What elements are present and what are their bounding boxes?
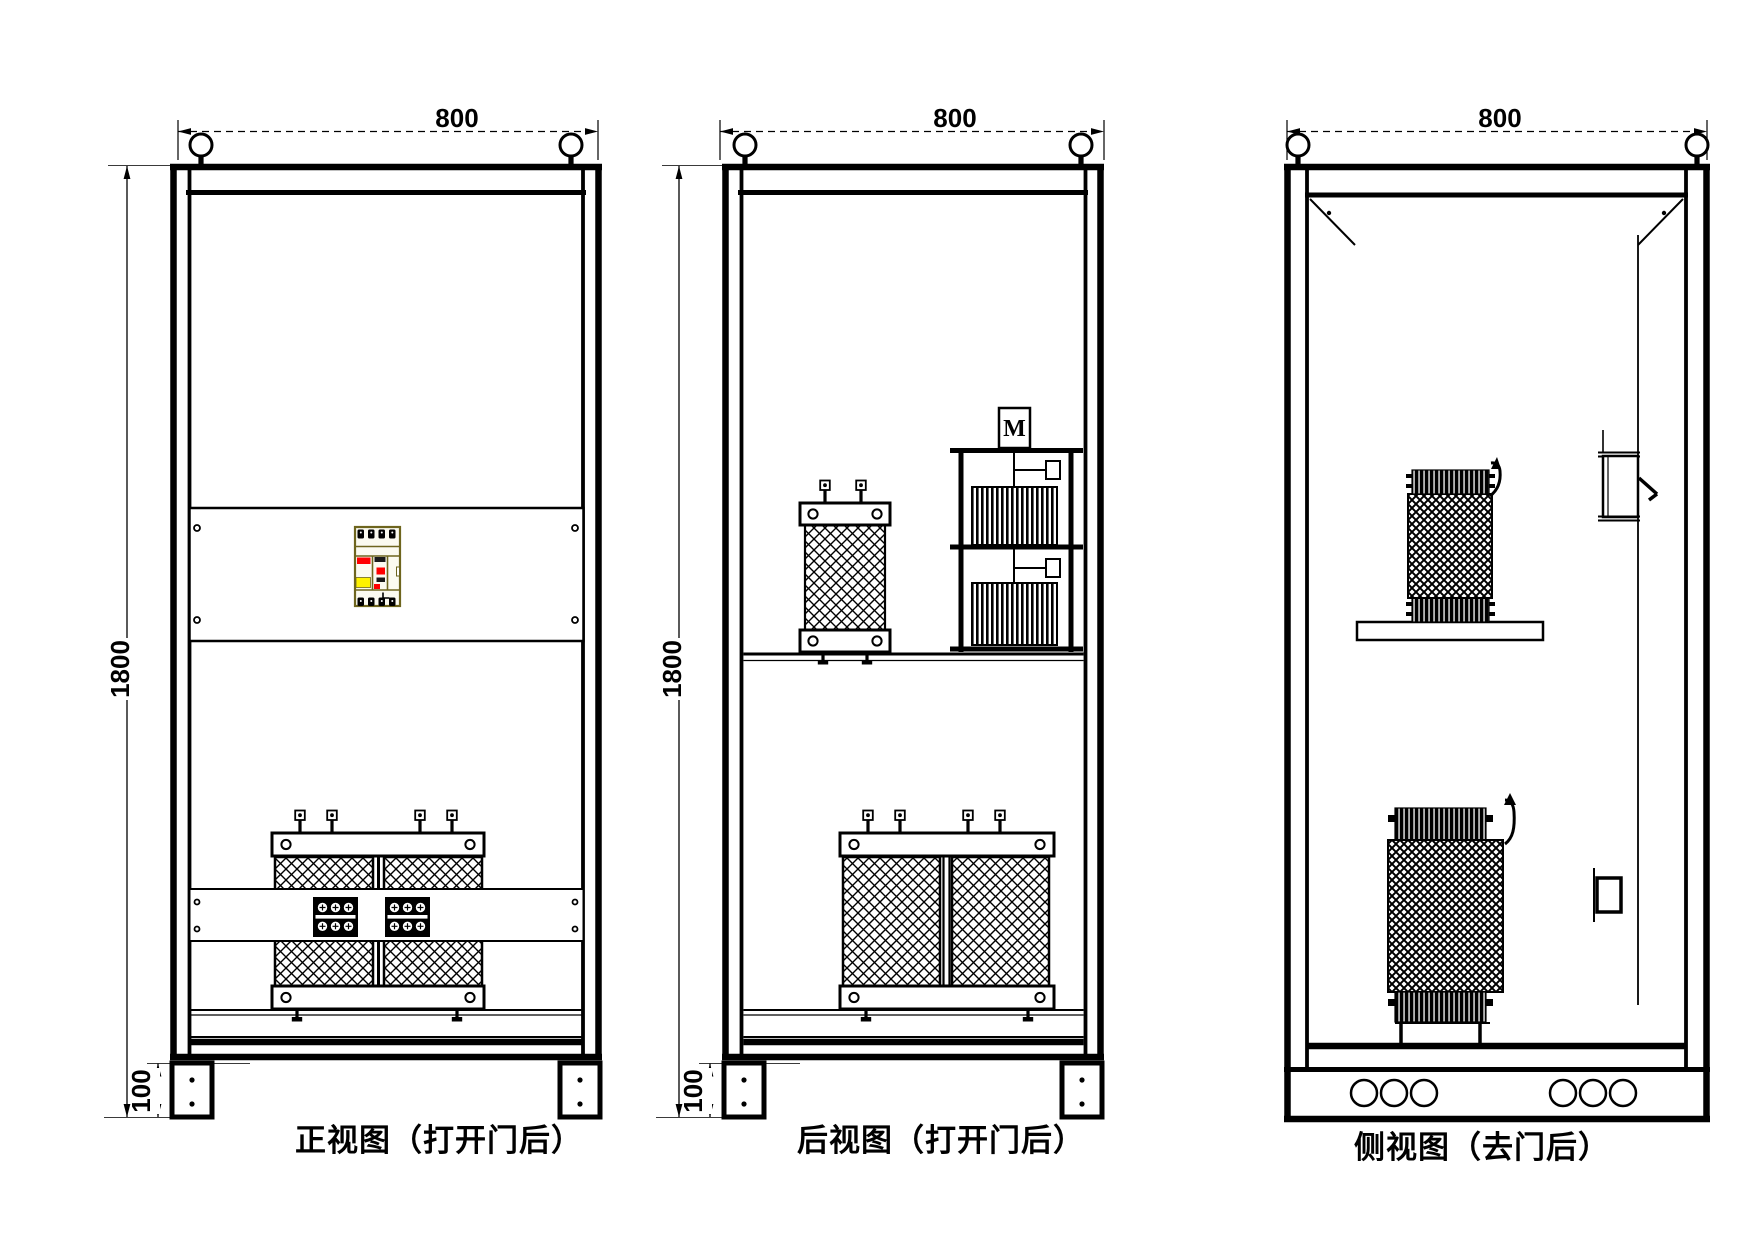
lifting-eye [1287,134,1309,166]
wall-bracket [1594,868,1621,922]
front-view: 800 1800 100 [104,103,602,1158]
rear-foot-right [1062,1063,1102,1117]
rear-base-label: 100 [678,1069,708,1112]
rear-view-caption: 后视图（打开门后） [797,1123,1085,1158]
front-base-label: 100 [126,1069,156,1112]
cable-entry-hole [1550,1080,1576,1106]
terminal-stud [327,811,337,834]
side-base [1284,1070,1710,1120]
terminal-block [314,898,357,936]
terminal-stud [295,811,305,834]
side-view: 800 [1284,103,1710,1165]
rear-small-transformer [800,481,890,665]
breaker-red-flag [357,558,371,565]
transformer-lead-wire [1504,793,1516,844]
motor-label: M [1003,416,1026,442]
door-handle [1639,478,1657,500]
rear-height-label: 1800 [657,640,687,698]
front-transformer [190,811,584,1022]
terminal-stud [856,481,866,504]
front-width-label: 800 [435,103,478,133]
corner-gusset [1638,199,1683,245]
reactor-fin-block [972,583,1057,645]
terminal-block [386,898,429,936]
side-upper-reactor [1357,457,1543,640]
rear-reactor-rack: M [950,408,1083,652]
side-main-transformer [1388,793,1621,1046]
side-width-label: 800 [1478,103,1521,133]
lifting-eye [1070,134,1092,166]
lifting-eye [560,134,582,166]
front-foot-right [560,1063,600,1117]
terminal-stud [415,811,425,834]
door-mounted-box [1598,430,1657,521]
front-dimension-width: 800 [178,103,598,160]
lifting-eye [734,134,756,166]
reactor-shelf [1357,622,1543,640]
side-view-caption: 侧视图（去门后） [1354,1130,1610,1165]
lifting-eye [1686,134,1708,166]
corner-gusset [1310,199,1355,245]
rear-dimension-width: 800 [720,103,1104,160]
cable-entry-hole [1381,1080,1407,1106]
front-height-label: 1800 [105,640,135,698]
terminal-stud [820,481,830,504]
terminal-stud [963,811,973,834]
terminal-stud [447,811,457,834]
terminal-stud [995,811,1005,834]
breaker-red-dot [374,584,380,589]
terminal-stud [863,811,873,834]
reactor-fin-block [972,487,1057,545]
transformer-bottom-clamp [272,986,484,1009]
rear-view: 800 1800 100 [656,103,1104,1158]
lifting-eye [190,134,212,166]
rear-foot-left [724,1063,764,1117]
front-view-caption: 正视图（打开门后） [295,1123,583,1158]
terminal-stud [895,811,905,834]
circuit-breaker [355,527,400,606]
rear-main-transformer [840,811,1054,1022]
side-dimension-width: 800 [1287,103,1707,160]
cable-entry-hole [1351,1080,1377,1106]
front-dimension-height: 1800 [104,166,190,1118]
breaker-yellow-label [356,578,371,588]
transformer-top-clamp [272,833,484,856]
transformer-stand [1395,1023,1490,1046]
engineering-drawing: 800 1800 100 [0,0,1754,1240]
rear-width-label: 800 [933,103,976,133]
front-foot-left [172,1063,212,1117]
breaker-red-button [377,568,386,575]
cable-entry-hole [1411,1080,1437,1106]
cable-entry-hole [1610,1080,1636,1106]
rear-dimension-height: 1800 [656,166,742,1118]
cable-entry-hole [1580,1080,1606,1106]
